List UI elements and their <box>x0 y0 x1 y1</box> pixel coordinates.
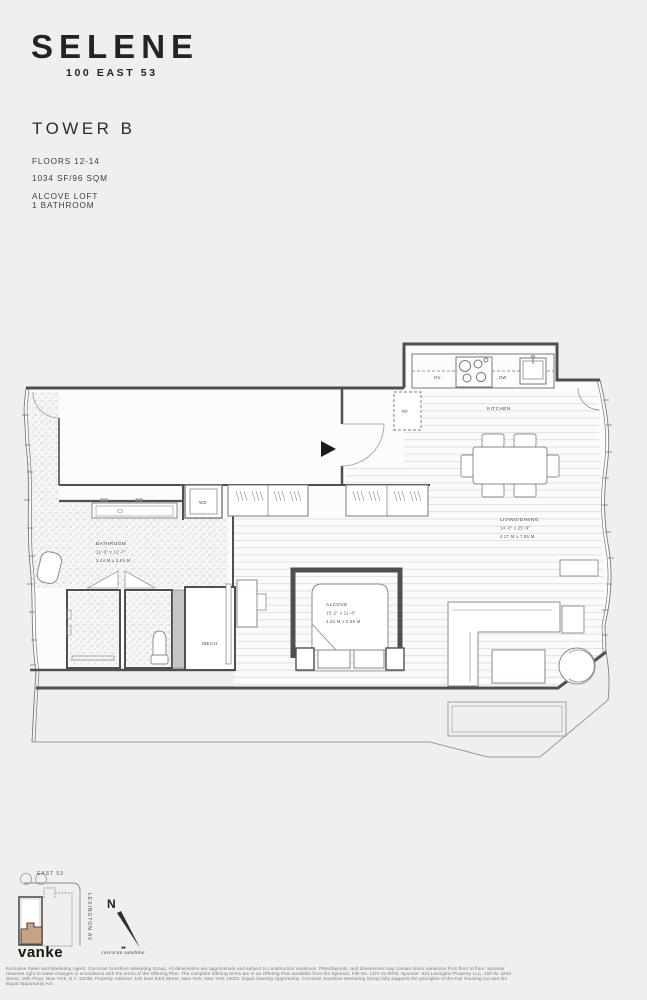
key-plan: EAST 53 LEXINGTON AV N <box>19 871 140 948</box>
bathroom-dim-m: 3.44 M x 3.84 M <box>96 558 131 563</box>
alcove-label: ALCOVE <box>326 602 348 607</box>
north-label: N <box>107 897 116 911</box>
street-label-right: LEXINGTON AV <box>86 893 92 941</box>
living-dining-dim-ft: 14'-0" x 25'-9" <box>500 526 530 531</box>
legal-disclaimer: Exclusive Sales and Marketing Agent: Cor… <box>6 967 511 987</box>
closets <box>185 485 428 518</box>
north-arrow-icon <box>117 911 140 948</box>
washer-dryer-label: WD <box>199 500 207 505</box>
oven-label: OV <box>434 375 441 380</box>
bathroom-dim-ft: 11'-3" x 12'-7" <box>96 550 126 555</box>
refrigerator-label: RF <box>402 409 408 414</box>
dishwasher-label: DW <box>499 375 507 380</box>
living-dining-label: LIVING/DINING <box>500 517 539 522</box>
terrace-edge <box>32 700 608 757</box>
kitchen-label: KITCHEN <box>487 406 511 411</box>
corcoran-sunshine-text: corcoran sunshine <box>88 950 158 956</box>
mech-label: MECH <box>202 641 218 646</box>
floor-plan-drawing: OV DW RF WD <box>0 0 647 1000</box>
corcoran-sunshine-logo: ●● corcoran sunshine <box>88 946 158 956</box>
living-dining-dim-m: 4.27 M x 7.85 M <box>500 534 535 539</box>
street-label-top: EAST 53 <box>37 871 64 877</box>
floorplan-sheet: SELENE 100 EAST 53 TOWER B FLOORS 12-14 … <box>0 0 647 1000</box>
alcove-dim-m: 4.62 M x 3.56 M <box>326 619 361 624</box>
bathroom-label: BATHROOM <box>96 541 126 546</box>
alcove-dim-ft: 15'-2" x 11'-8" <box>326 611 356 616</box>
vanke-logo: vanke <box>18 944 63 961</box>
